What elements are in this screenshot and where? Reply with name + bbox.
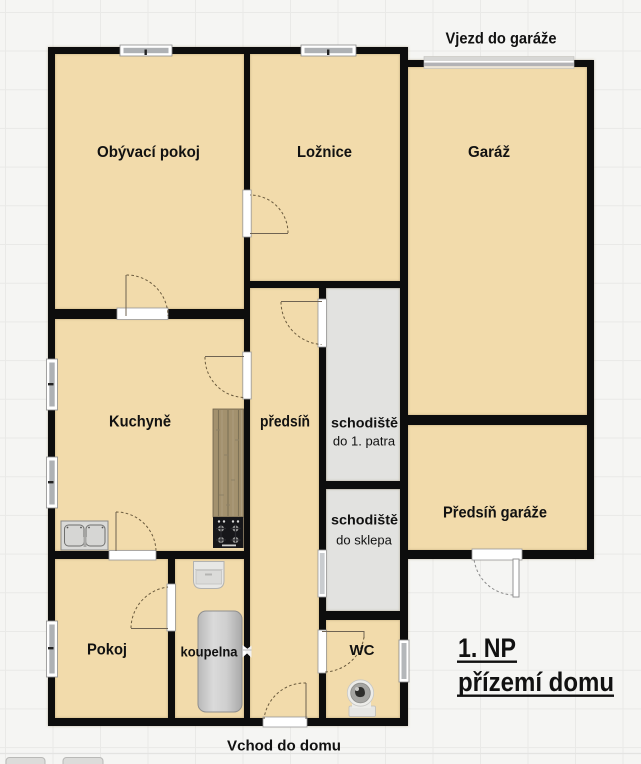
svg-text:Obývací pokoj: Obývací pokoj [97, 144, 200, 161]
svg-text:přízemí domu: přízemí domu [458, 667, 614, 697]
svg-text:Vjezd do garáže: Vjezd do garáže [446, 31, 557, 48]
svg-text:Vchod do domu: Vchod do domu [227, 738, 341, 755]
svg-text:schodiště: schodiště [331, 415, 398, 431]
svg-text:schodiště: schodiště [331, 512, 398, 528]
svg-text:předsíň: předsíň [260, 414, 310, 431]
svg-text:do 1. patra: do 1. patra [333, 434, 396, 449]
svg-text:Pokoj: Pokoj [87, 642, 127, 659]
svg-text:Předsíň garáže: Předsíň garáže [443, 505, 547, 522]
svg-text:Garáž: Garáž [468, 144, 510, 161]
svg-text:WC: WC [350, 642, 375, 659]
svg-text:koupelna: koupelna [181, 645, 238, 660]
svg-text:1. NP: 1. NP [458, 633, 516, 663]
svg-text:Kuchyně: Kuchyně [109, 414, 171, 431]
svg-text:do sklepa: do sklepa [336, 533, 392, 548]
svg-text:Ložnice: Ložnice [297, 144, 352, 161]
